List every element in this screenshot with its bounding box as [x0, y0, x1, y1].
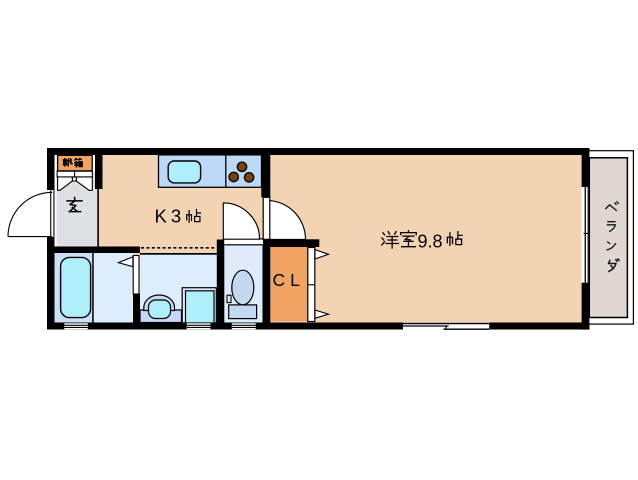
svg-text:K3: K3 — [155, 206, 186, 227]
svg-text:CL: CL — [273, 270, 305, 290]
svg-text:9.8: 9.8 — [418, 231, 443, 251]
